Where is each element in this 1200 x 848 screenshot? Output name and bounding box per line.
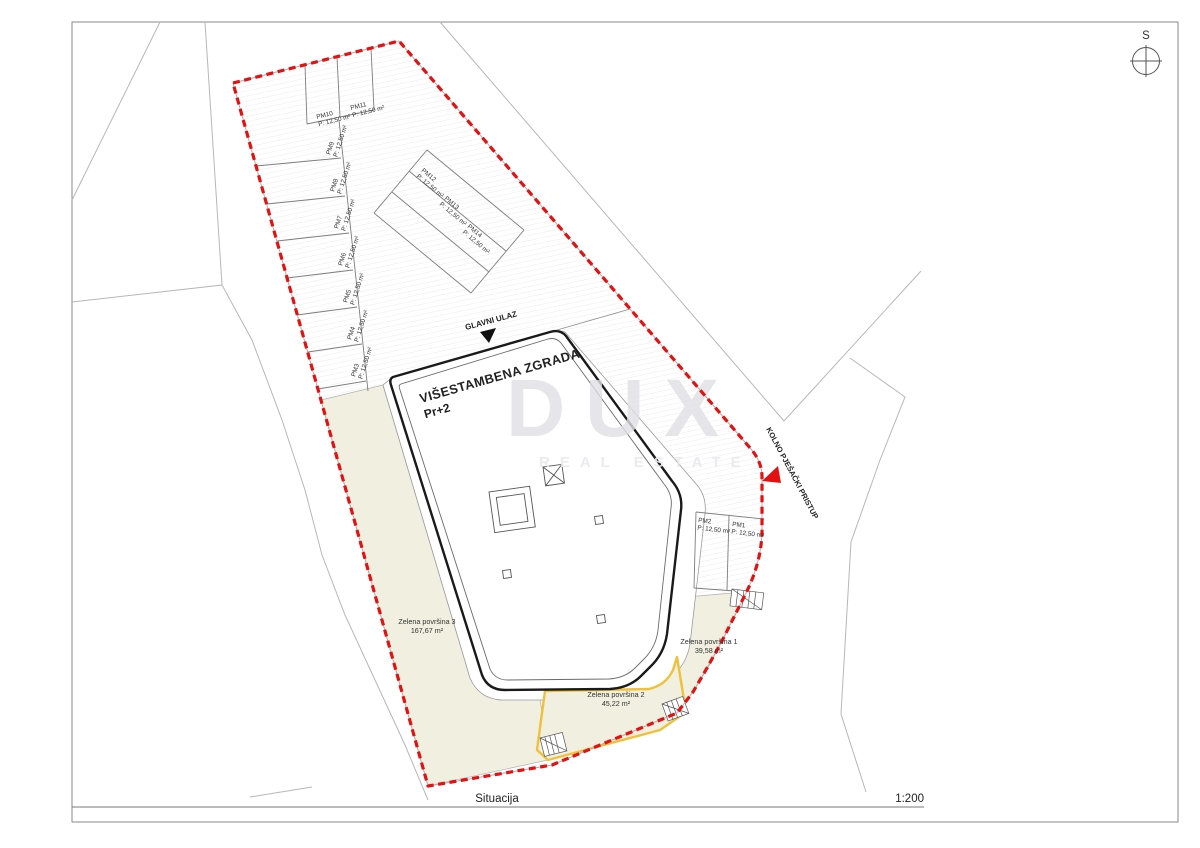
watermark: DUX REAL ESTATE [506, 363, 751, 471]
green-area-1-size: 39,58 m² [695, 646, 724, 655]
access-road: KOLNO PJEŠAČKI PRISTUP [762, 426, 820, 521]
watermark-subtitle: REAL ESTATE [539, 454, 751, 471]
green-area-1-name: Zelena površina 1 [680, 637, 737, 646]
green-area-2-size: 45,22 m² [602, 699, 631, 708]
watermark-brand: DUX [506, 363, 739, 454]
site-plan-svg: DUX REAL ESTATE PM9 P: 12,50 m² PM8 P: 1… [0, 0, 1200, 848]
title-block: Situacija 1:200 [72, 793, 924, 807]
north-label: S [1142, 30, 1150, 42]
drawing-scale: 1:200 [895, 793, 924, 805]
north-indicator: S [1130, 30, 1162, 77]
green-area-2-name: Zelena površina 2 [587, 690, 644, 699]
parcel-line-southwest [250, 787, 312, 797]
green-area-3-name: Zelena površina 3 [398, 617, 455, 626]
road-edge-east [841, 358, 905, 792]
green-area-3-size: 167,67 m² [411, 626, 444, 635]
site-plan-page: DUX REAL ESTATE PM9 P: 12,50 m² PM8 P: 1… [0, 0, 1200, 848]
road-edge-northwest [72, 22, 160, 200]
drawing-title: Situacija [475, 793, 519, 805]
access-arrow-icon [762, 466, 781, 483]
road-edge-west-branch [72, 22, 222, 302]
